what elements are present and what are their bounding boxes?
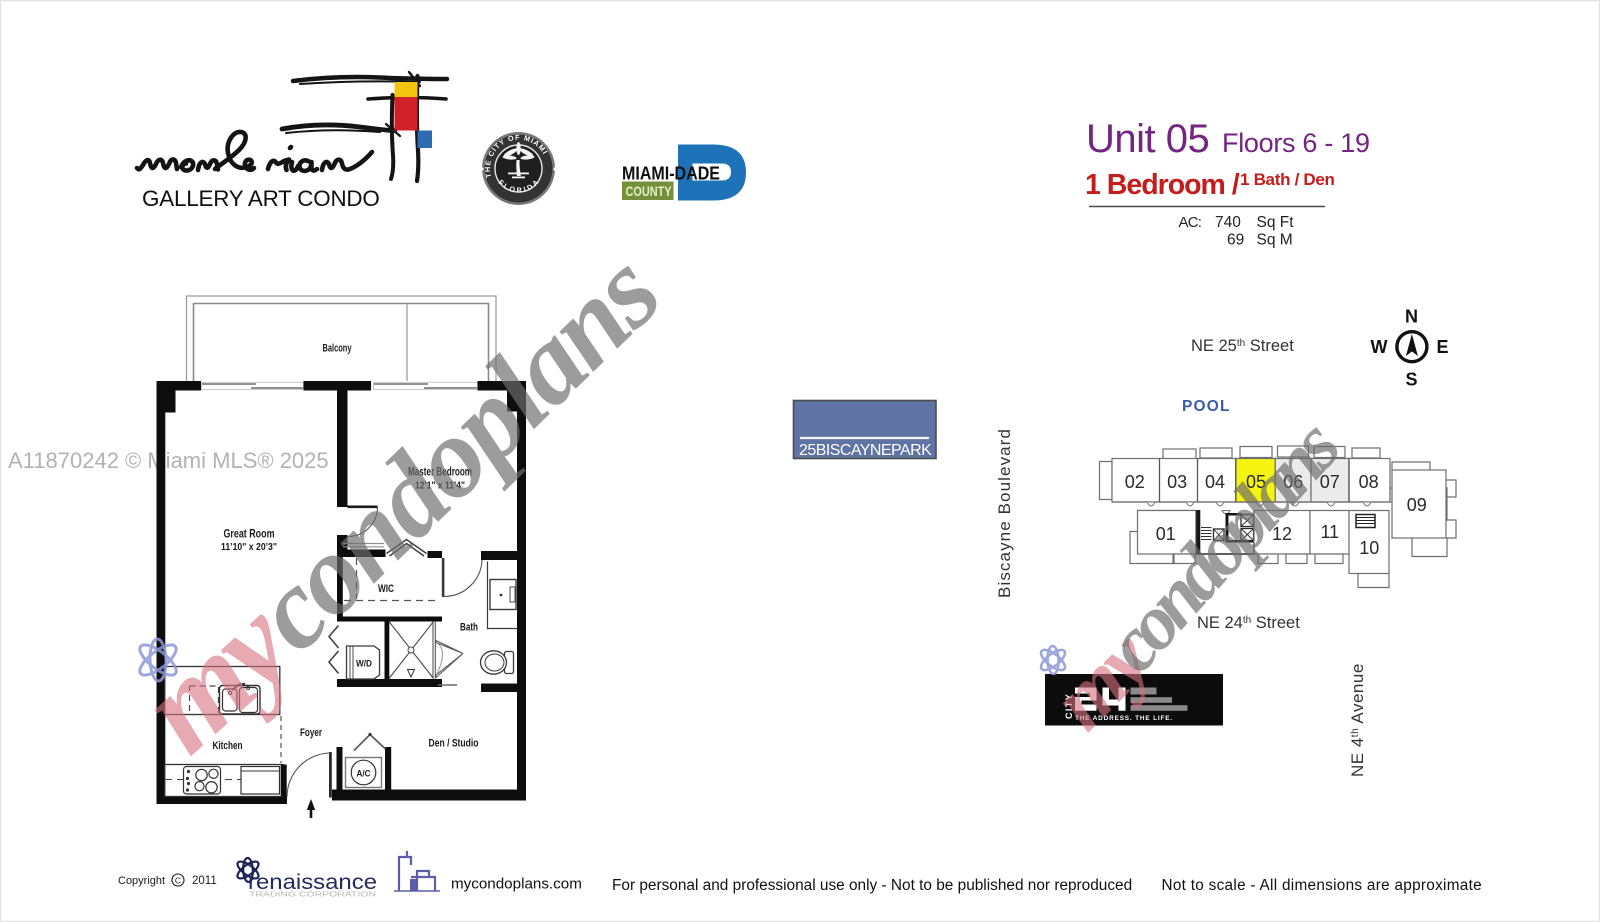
- svg-text:Floors 6 - 19: Floors 6 - 19: [1222, 128, 1370, 158]
- svg-text:1 Bedroom /: 1 Bedroom /: [1085, 169, 1240, 201]
- svg-text:69: 69: [1227, 232, 1244, 249]
- svg-text:03: 03: [1167, 472, 1187, 492]
- svg-text:POOL: POOL: [1182, 398, 1231, 415]
- svg-text:mycondoplans.com: mycondoplans.com: [451, 876, 582, 893]
- svg-text:COUNTY: COUNTY: [626, 184, 672, 199]
- svg-text:C: C: [175, 876, 181, 886]
- svg-text:W: W: [1371, 337, 1388, 357]
- svg-text:Biscayne Boulevard: Biscayne Boulevard: [995, 428, 1014, 598]
- svg-text:MIAMI-DADE: MIAMI-DADE: [622, 163, 720, 184]
- svg-text:N: N: [1405, 307, 1418, 327]
- svg-text:For personal and professional: For personal and professional use only -…: [612, 877, 1132, 894]
- svg-text:Den / Studio: Den / Studio: [429, 738, 479, 750]
- svg-text:Sq Ft: Sq Ft: [1257, 214, 1295, 231]
- svg-text:Unit 05: Unit 05: [1086, 117, 1209, 161]
- svg-text:TRADING CORPORATION: TRADING CORPORATION: [249, 892, 376, 899]
- svg-text:A/C: A/C: [357, 769, 371, 779]
- svg-text:NE 25th Street: NE 25th Street: [1191, 337, 1294, 355]
- svg-text:Sq M: Sq M: [1257, 232, 1293, 249]
- svg-text:Not to scale - All dimensions: Not to scale - All dimensions are approx…: [1162, 877, 1482, 894]
- svg-text:NE 4th Avenue: NE 4th Avenue: [1348, 663, 1367, 777]
- svg-text:Foyer: Foyer: [300, 727, 323, 739]
- svg-text:Copyright: Copyright: [118, 875, 165, 887]
- svg-text:AC:: AC:: [1179, 214, 1202, 231]
- svg-text:Bath: Bath: [460, 622, 478, 634]
- svg-text:11: 11: [1320, 522, 1339, 542]
- svg-text:GALLERY ART CONDO: GALLERY ART CONDO: [142, 186, 380, 211]
- svg-text:Great Room: Great Room: [224, 529, 275, 541]
- svg-text:2011: 2011: [192, 875, 217, 887]
- svg-text:E: E: [1436, 337, 1448, 357]
- svg-text:02: 02: [1125, 472, 1145, 492]
- svg-text:1 Bath / Den: 1 Bath / Den: [1240, 170, 1335, 189]
- svg-text:25BISCAYNEPARK: 25BISCAYNEPARK: [799, 442, 932, 459]
- svg-text:10: 10: [1359, 538, 1379, 558]
- svg-text:Balcony: Balcony: [323, 343, 353, 355]
- svg-text:W/D: W/D: [356, 659, 372, 670]
- svg-text:09: 09: [1407, 495, 1427, 515]
- svg-text:S: S: [1405, 370, 1417, 390]
- svg-text:740: 740: [1215, 214, 1241, 231]
- svg-text:A11870242 © Miami MLS® 2025: A11870242 © Miami MLS® 2025: [8, 448, 329, 473]
- svg-text:08: 08: [1359, 472, 1379, 492]
